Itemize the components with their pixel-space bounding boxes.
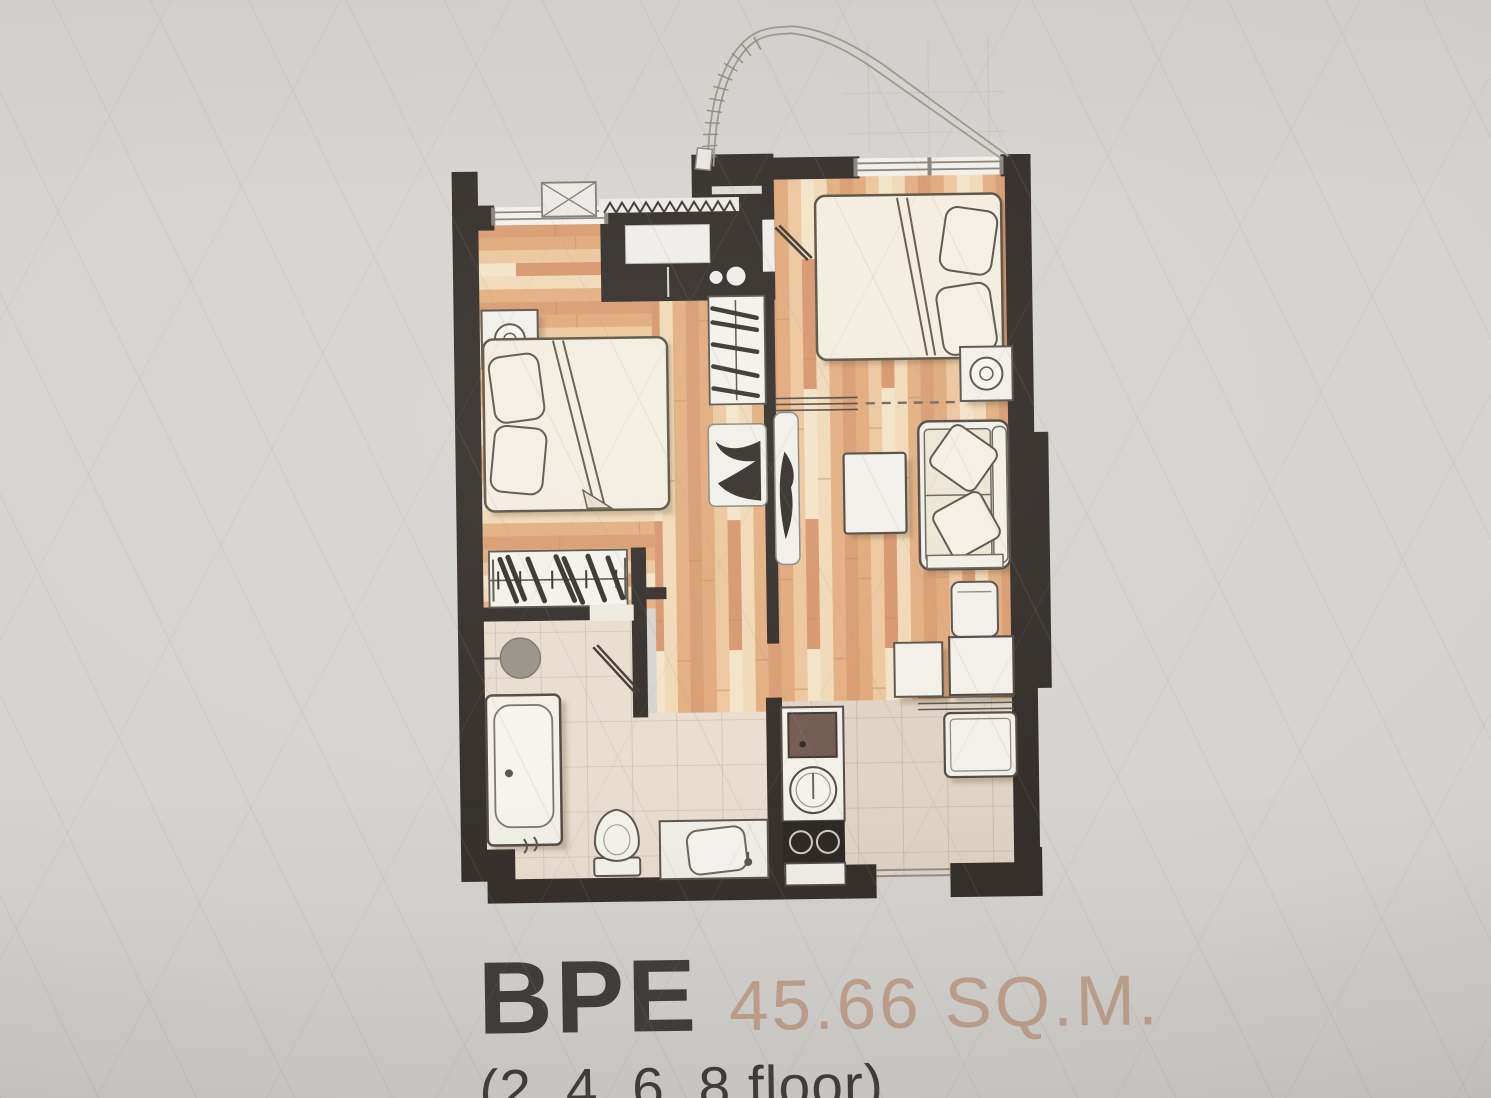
refrigerator xyxy=(944,712,1017,777)
caption: BPE 45.66 SQ.M. (2, 4, 6, 8 floor) xyxy=(477,930,1162,1098)
wall-right-bulge xyxy=(1008,432,1052,689)
poster-content: BPE 45.66 SQ.M. (2, 4, 6, 8 floor) xyxy=(0,0,1491,1098)
window-master-bedroom xyxy=(853,156,1003,176)
caption-line1: BPE 45.66 SQ.M. xyxy=(477,930,1161,1058)
console-strip xyxy=(927,554,1003,568)
dining-table xyxy=(949,636,1014,695)
vanity-sink xyxy=(660,820,769,880)
ac-unit xyxy=(542,182,596,217)
wall-bathroom-top xyxy=(466,606,592,622)
toilet xyxy=(593,809,640,876)
pillow xyxy=(490,425,548,495)
unit-name: BPE xyxy=(477,937,699,1058)
wall-top-right-corner xyxy=(1000,154,1030,176)
wardrobe-left xyxy=(489,550,628,608)
entrance-cabinet-niche xyxy=(625,224,710,263)
sofa xyxy=(918,420,1010,569)
pillow xyxy=(935,281,999,356)
shower-head xyxy=(500,638,541,679)
stove xyxy=(783,821,846,866)
side-table xyxy=(894,642,943,697)
master-doorway-gap xyxy=(762,220,775,272)
bathroom-doorway-gap xyxy=(590,605,634,622)
base-cabinet xyxy=(785,863,845,886)
hall-closet xyxy=(708,296,766,405)
wall-top-left-a xyxy=(452,205,494,231)
wall-bottom-left-corner xyxy=(461,849,515,882)
exhaust-duct-curve xyxy=(693,23,1008,170)
duct-outlet-box xyxy=(695,148,712,170)
pillow xyxy=(487,352,545,424)
unit-floors: (2, 4, 6, 8 floor) xyxy=(479,1048,1162,1098)
lamp-master xyxy=(970,357,1002,389)
wall-bathroom-stub xyxy=(646,587,666,599)
counter-inset xyxy=(788,713,837,758)
entrance-slit xyxy=(712,186,762,195)
coffee-table xyxy=(844,453,907,534)
chair xyxy=(951,581,998,637)
wall-right-lower xyxy=(1012,686,1041,866)
unit-area: 45.66 SQ.M. xyxy=(728,960,1161,1047)
wall-top-master xyxy=(771,156,859,179)
pillow xyxy=(938,205,999,276)
floor-plan xyxy=(432,16,1064,915)
photo-background: BPE 45.66 SQ.M. (2, 4, 6, 8 floor) xyxy=(0,0,1491,1098)
bathtub xyxy=(486,695,562,854)
